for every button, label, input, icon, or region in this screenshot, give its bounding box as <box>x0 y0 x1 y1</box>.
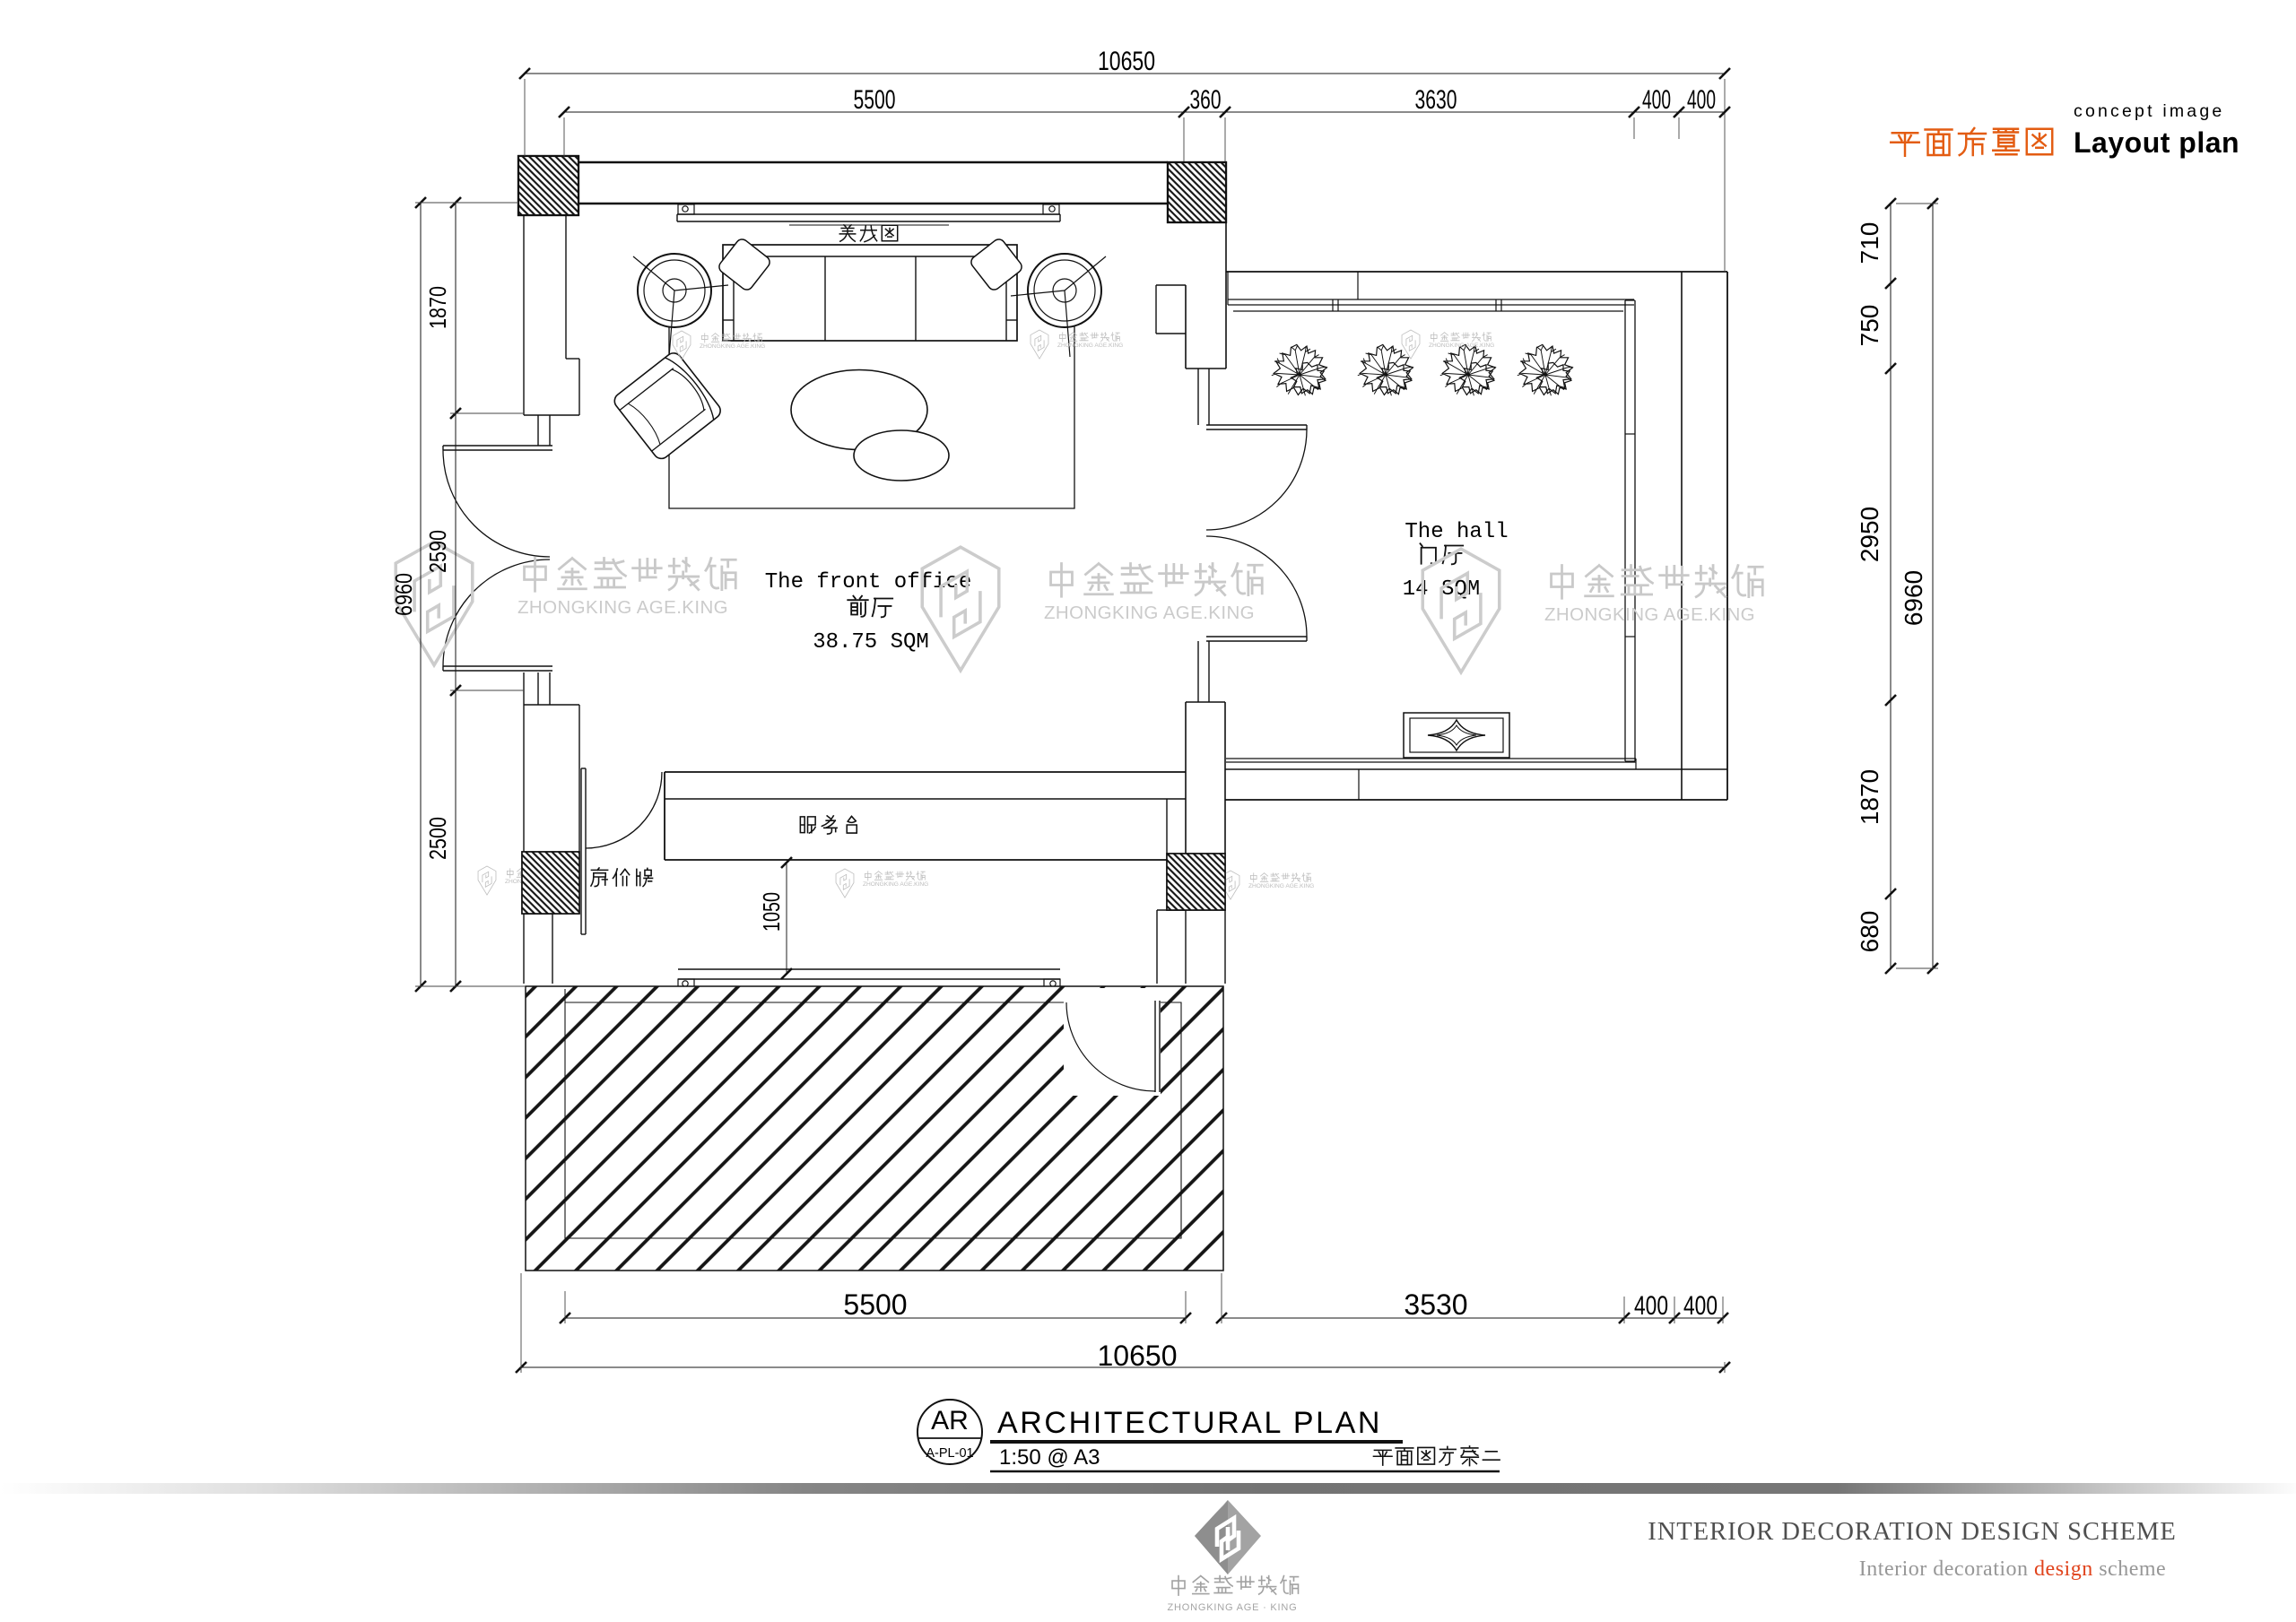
svg-text:ZHONGKING AGE.KING: ZHONGKING AGE.KING <box>1248 883 1314 889</box>
svg-text:5500: 5500 <box>854 85 896 115</box>
svg-text:ARCHITECTURAL PLAN: ARCHITECTURAL PLAN <box>997 1406 1382 1440</box>
svg-text:400: 400 <box>1683 1291 1718 1321</box>
svg-text:ZHONGKING AGE.KING: ZHONGKING AGE.KING <box>700 343 765 350</box>
svg-text:ZHONGKING AGE.KING: ZHONGKING AGE.KING <box>1044 603 1255 623</box>
svg-text:6960: 6960 <box>1900 570 1927 626</box>
svg-text:concept image: concept image <box>2074 101 2224 121</box>
svg-text:2950: 2950 <box>1856 507 1883 562</box>
svg-text:710: 710 <box>1856 222 1883 265</box>
svg-text:ZHONGKING AGE.KING: ZHONGKING AGE.KING <box>1429 343 1494 349</box>
svg-text:ZHONGKING AGE.KING: ZHONGKING AGE.KING <box>1544 604 1755 625</box>
svg-text:A-PL-01: A-PL-01 <box>926 1446 973 1461</box>
svg-text:1870: 1870 <box>1856 769 1883 825</box>
svg-text:400: 400 <box>1634 1291 1668 1321</box>
svg-text:1870: 1870 <box>424 286 451 329</box>
svg-text:2590: 2590 <box>424 530 451 573</box>
svg-text:ZHONGKING AGE · KING: ZHONGKING AGE · KING <box>1168 1602 1298 1613</box>
svg-text:INTERIOR DECORATION DESIGN SCH: INTERIOR DECORATION DESIGN SCHEME <box>1648 1518 2177 1546</box>
svg-text:38.75 SQM: 38.75 SQM <box>813 630 929 655</box>
svg-text:1:50 @ A3: 1:50 @ A3 <box>999 1445 1100 1470</box>
svg-text:5500: 5500 <box>843 1288 907 1321</box>
svg-text:6960: 6960 <box>390 573 417 616</box>
svg-text:750: 750 <box>1856 305 1883 347</box>
svg-text:ZHONGKING AGE.KING: ZHONGKING AGE.KING <box>863 881 928 888</box>
svg-text:ZHONGKING AGE.KING: ZHONGKING AGE.KING <box>1057 343 1123 349</box>
svg-text:Interior decoration design sch: Interior decoration design scheme <box>1859 1557 2166 1581</box>
svg-text:400: 400 <box>1642 85 1671 115</box>
svg-text:3630: 3630 <box>1415 85 1457 115</box>
svg-text:10650: 10650 <box>1098 47 1155 76</box>
svg-text:400: 400 <box>1687 85 1716 115</box>
svg-text:1050: 1050 <box>758 892 785 932</box>
svg-text:680: 680 <box>1856 911 1883 953</box>
svg-text:Layout plan: Layout plan <box>2074 126 2239 159</box>
svg-text:360: 360 <box>1190 85 1222 115</box>
svg-text:2500: 2500 <box>424 817 451 860</box>
svg-text:3530: 3530 <box>1404 1288 1467 1321</box>
svg-text:AR: AR <box>931 1406 969 1436</box>
svg-text:The hall: The hall <box>1405 520 1508 544</box>
svg-text:ZHONGKING AGE.KING: ZHONGKING AGE.KING <box>517 597 728 618</box>
svg-text:10650: 10650 <box>1098 1340 1178 1372</box>
